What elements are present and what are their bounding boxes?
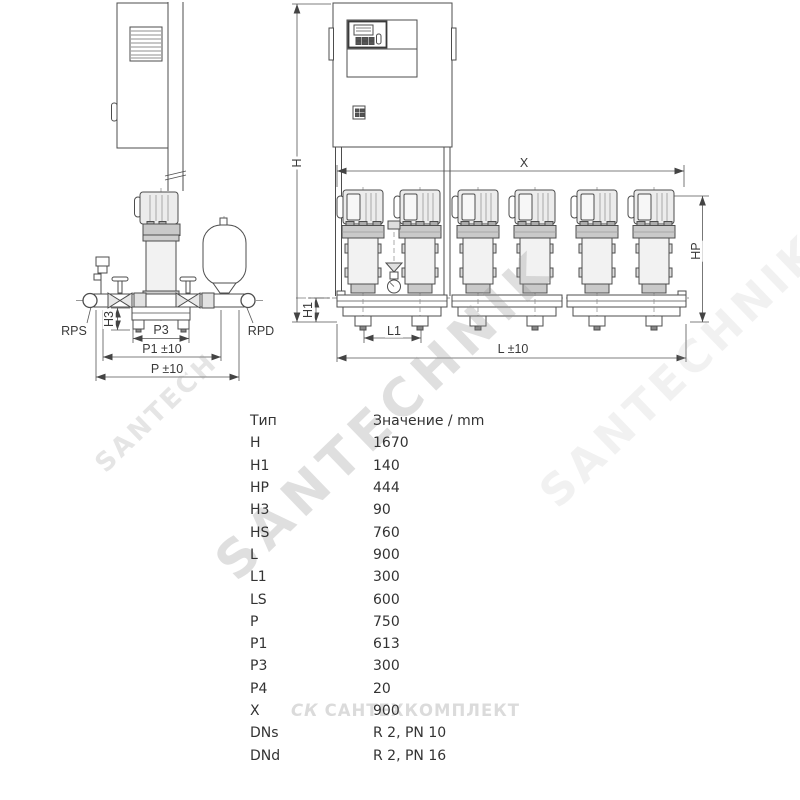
pressure-vessel — [203, 216, 246, 303]
table-row: H1 140 — [250, 455, 484, 477]
base-frame-front-view — [337, 291, 686, 316]
table-row: P3 300 — [250, 655, 484, 677]
table-row: P4 20 — [250, 678, 484, 700]
pressure-sensor-fitting — [94, 257, 109, 294]
table-row: HP 444 — [250, 477, 484, 499]
table-row: H 1670 — [250, 432, 484, 454]
table-row: H3 90 — [250, 499, 484, 521]
dimensions-table: Тип Значение / mm H 1670 H1 140 HP 444 H… — [250, 410, 484, 767]
cabinet-front-view — [329, 3, 456, 147]
table-row: DNd R 2, PN 16 — [250, 744, 484, 766]
table-header-value: Значение / mm — [373, 413, 484, 429]
table-row: P1 613 — [250, 633, 484, 655]
table-row: P 750 — [250, 611, 484, 633]
table-row: LS 600 — [250, 588, 484, 610]
cabinet-side-view — [112, 3, 169, 148]
table-header-type: Тип — [250, 413, 373, 429]
side-view-diagram — [76, 2, 263, 381]
door-lock — [353, 106, 365, 119]
table-row: HS 760 — [250, 521, 484, 543]
table-row: X 900 — [250, 700, 484, 722]
table-row: DNs R 2, PN 10 — [250, 722, 484, 744]
table-row: L 900 — [250, 544, 484, 566]
technical-drawing-page: SANTECHNIK SANTECH SANTECHNIK СКСАНТЕХКО… — [0, 0, 800, 800]
levelling-feet — [355, 316, 662, 330]
cabinet-stand-column — [165, 2, 186, 191]
controller-display — [349, 22, 387, 48]
table-row: L1 300 — [250, 566, 484, 588]
front-view-diagram — [292, 3, 709, 362]
table-header-row: Тип Значение / mm — [250, 410, 484, 432]
